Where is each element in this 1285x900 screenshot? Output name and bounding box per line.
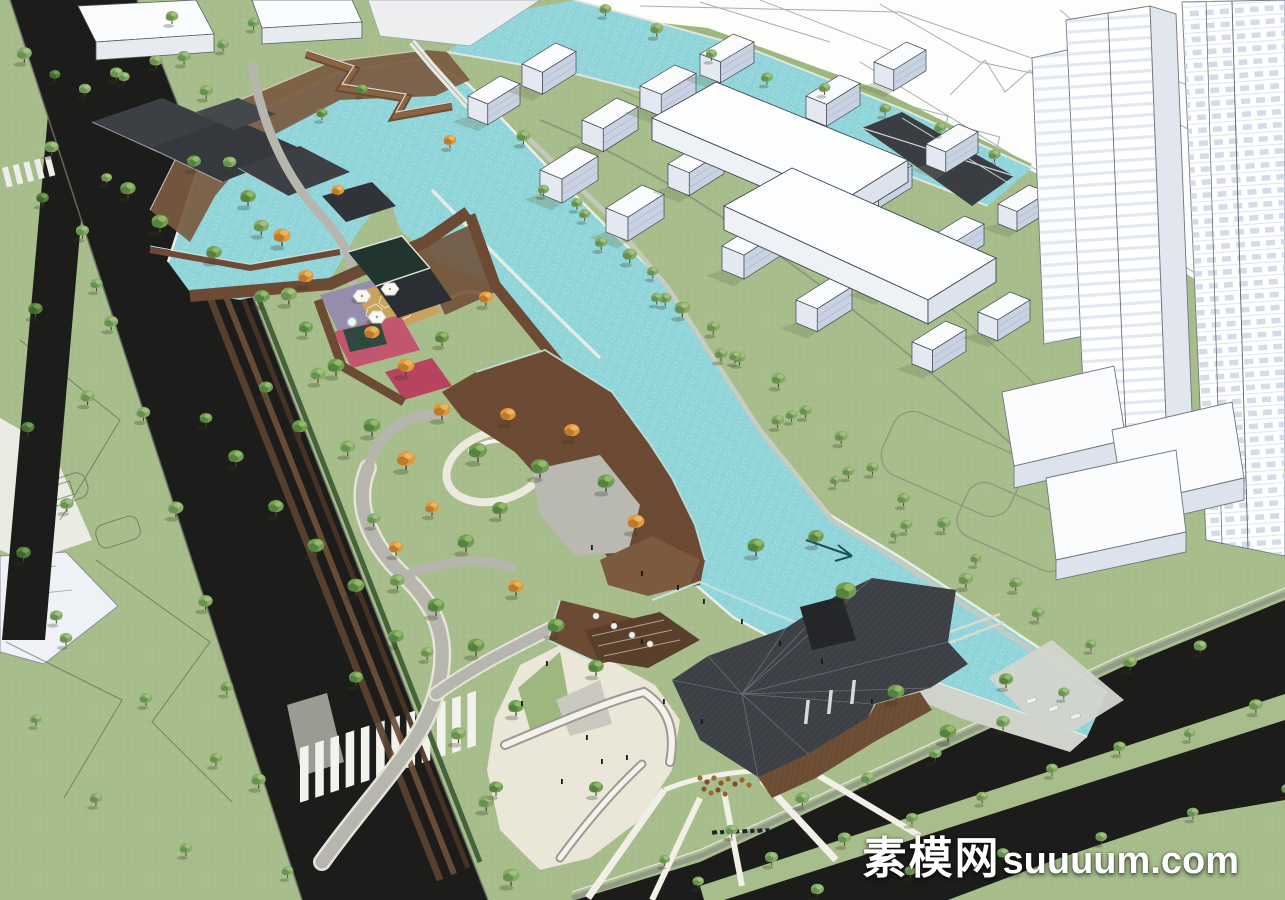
person xyxy=(677,585,679,590)
person xyxy=(701,719,703,724)
person xyxy=(663,699,665,704)
person xyxy=(521,701,523,706)
person xyxy=(641,571,643,576)
fountain xyxy=(348,318,357,327)
person xyxy=(626,755,628,760)
person xyxy=(703,599,705,604)
cafe-table xyxy=(647,641,653,647)
person xyxy=(779,641,781,646)
person xyxy=(601,759,603,764)
cafe-table xyxy=(593,613,599,619)
rendering-canvas: 素模网suuuum.com xyxy=(0,0,1285,900)
cafe-table xyxy=(611,623,617,629)
person xyxy=(741,619,743,624)
person xyxy=(641,639,643,644)
person xyxy=(546,661,548,666)
person xyxy=(821,659,823,664)
person xyxy=(586,735,588,740)
cafe-table xyxy=(629,632,635,638)
person xyxy=(871,699,873,704)
person xyxy=(591,545,593,550)
scene-svg xyxy=(0,0,1285,900)
person xyxy=(561,779,563,784)
